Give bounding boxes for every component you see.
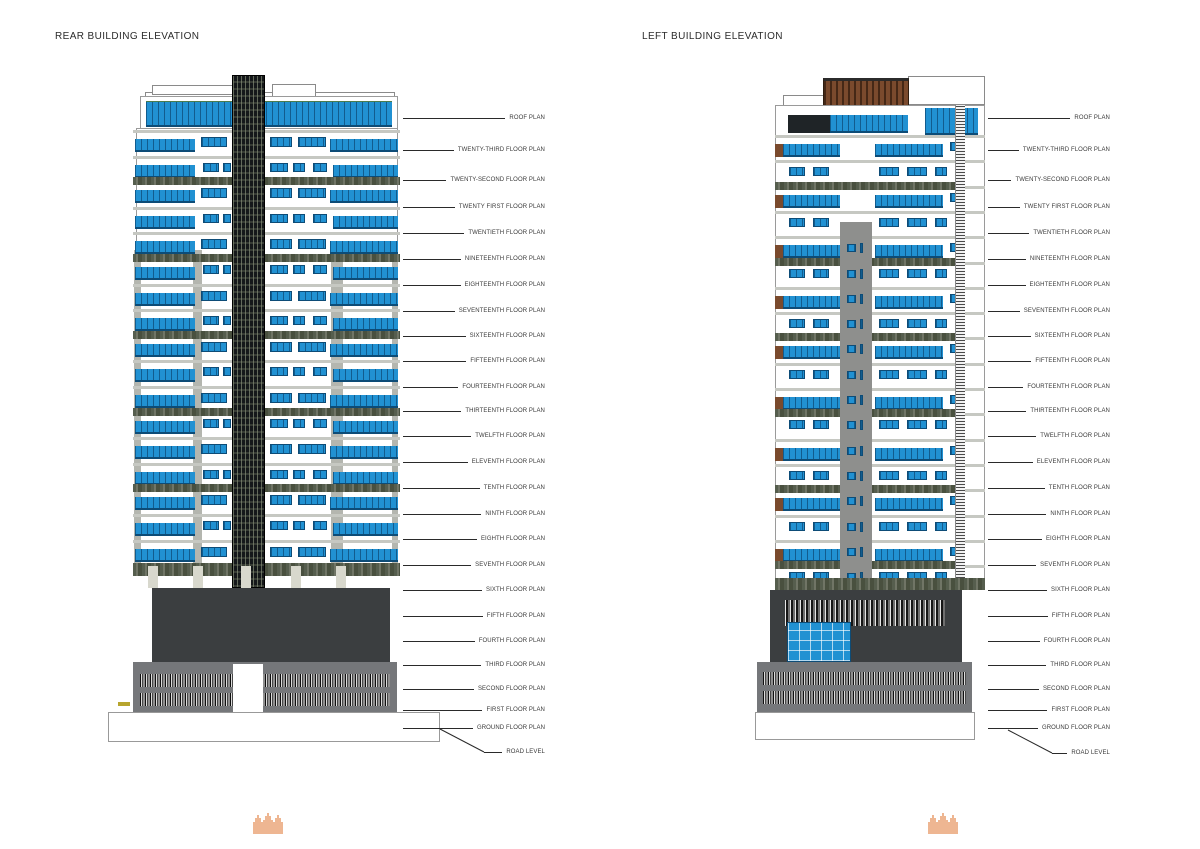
window-glazing xyxy=(875,498,943,511)
core-window xyxy=(847,295,856,303)
floor-label: NINETEENTH FLOOR PLAN xyxy=(1030,256,1110,262)
window-glazing xyxy=(935,319,947,328)
floor-label: SECOND FLOOR PLAN xyxy=(1043,686,1110,692)
core-window xyxy=(847,320,856,328)
core-window xyxy=(860,471,863,481)
window-glazing xyxy=(907,167,927,176)
leader-line xyxy=(988,590,1047,591)
window-glazing xyxy=(907,420,927,429)
podium-louver-strip xyxy=(763,691,966,704)
rooftop-dark-block xyxy=(788,115,830,133)
base-plinth xyxy=(755,712,975,740)
floor-label-row: THIRD FLOOR PLAN xyxy=(988,661,1110,669)
window-glazing xyxy=(879,167,899,176)
window-glazing xyxy=(813,522,829,531)
castle-towers-logo-icon xyxy=(928,812,958,838)
floor-label-row: TWENTY FIRST FLOOR PLAN xyxy=(988,203,1110,211)
floor-label-row: EIGHTEENTH FLOOR PLAN xyxy=(988,281,1110,289)
podium xyxy=(757,662,972,712)
floor-label-row: TWENTY-SECOND FLOOR PLAN xyxy=(988,176,1110,184)
floor-label: GROUND FLOOR PLAN xyxy=(1042,725,1110,731)
window-glazing xyxy=(875,195,943,208)
entrance-curtain-wall xyxy=(787,622,851,662)
window-glazing xyxy=(875,549,943,562)
floor-label-row: ROOF PLAN xyxy=(988,114,1110,122)
window-glazing xyxy=(783,245,840,258)
floor-slab xyxy=(775,160,985,163)
floor-label: EIGHTH FLOOR PLAN xyxy=(1046,536,1110,542)
floor-label: SIXTEENTH FLOOR PLAN xyxy=(1035,333,1110,339)
leader-line xyxy=(988,411,1026,412)
core-window xyxy=(847,523,856,531)
drawing-sheet: { "sheet": {"background": "#ffffff"}, "p… xyxy=(0,0,1200,849)
window-glazing xyxy=(935,471,947,480)
window-glazing xyxy=(875,144,943,157)
floor-slab xyxy=(775,363,985,366)
core-window xyxy=(847,244,856,252)
core-window xyxy=(860,420,863,430)
leader-line xyxy=(988,361,1031,362)
core-window xyxy=(847,371,856,379)
window-glazing xyxy=(789,167,805,176)
core-window xyxy=(860,547,863,557)
window-glazing xyxy=(935,420,947,429)
window-glazing xyxy=(875,245,943,258)
window-glazing xyxy=(789,218,805,227)
leader-line xyxy=(1052,753,1067,754)
core-window xyxy=(860,370,863,380)
leader-line xyxy=(988,665,1046,666)
panel-left-elevation: LEFT BUILDING ELEVATION ROOF PLANTWENTY-… xyxy=(0,0,1200,849)
timber-accent-panel xyxy=(775,498,783,511)
floor-label-row: SEVENTH FLOOR PLAN xyxy=(988,561,1110,569)
window-glazing xyxy=(875,448,943,461)
core-window xyxy=(847,548,856,556)
window-glazing xyxy=(935,522,947,531)
window-glazing xyxy=(789,522,805,531)
window-glazing xyxy=(789,370,805,379)
floor-slab xyxy=(775,540,985,543)
window-glazing xyxy=(875,296,943,309)
window-glazing xyxy=(907,218,927,227)
leader-line xyxy=(988,207,1020,208)
window-glazing xyxy=(813,218,829,227)
window-glazing xyxy=(907,269,927,278)
leader-line xyxy=(988,150,1019,151)
leader-line xyxy=(988,311,1020,312)
floor-slab xyxy=(775,236,985,239)
floor-slab xyxy=(775,439,985,442)
window-glazing xyxy=(783,397,840,410)
window-glazing xyxy=(789,269,805,278)
core-window xyxy=(847,421,856,429)
floor-label-row: SIXTH FLOOR PLAN xyxy=(988,586,1110,594)
window-glazing xyxy=(783,346,840,359)
floor-label: THIRD FLOOR PLAN xyxy=(1050,662,1110,668)
floor-label: FIFTH FLOOR PLAN xyxy=(1052,613,1110,619)
window-glazing xyxy=(879,420,899,429)
floor-slab xyxy=(775,312,985,315)
floor-label-row: FIFTEENTH FLOOR PLAN xyxy=(988,357,1110,365)
core-window xyxy=(860,269,863,279)
top-glazing-band xyxy=(925,108,978,135)
core-window xyxy=(847,396,856,404)
floor-label: FOURTH FLOOR PLAN xyxy=(1044,638,1110,644)
leader-line xyxy=(988,514,1046,515)
window-glazing xyxy=(783,549,840,562)
leader-line xyxy=(988,728,1038,729)
timber-accent-panel xyxy=(775,448,783,461)
floor-label: TENTH FLOOR PLAN xyxy=(1049,485,1110,491)
balcony-planter xyxy=(775,578,985,590)
window-glazing xyxy=(813,420,829,429)
window-glazing xyxy=(935,269,947,278)
floor-label: ROAD LEVEL xyxy=(1071,750,1110,756)
window-glazing xyxy=(879,370,899,379)
floor-slab xyxy=(775,388,985,391)
window-glazing xyxy=(935,218,947,227)
leader-line xyxy=(988,387,1023,388)
core-window xyxy=(860,446,863,456)
core-window xyxy=(860,496,863,506)
window-glazing xyxy=(813,269,829,278)
floor-label: TWENTY-SECOND FLOOR PLAN xyxy=(1015,177,1110,183)
timber-accent-panel xyxy=(775,144,783,157)
window-glazing xyxy=(879,522,899,531)
floor-label-row: NINETEENTH FLOOR PLAN xyxy=(988,255,1110,263)
window-glazing xyxy=(783,498,840,511)
tower-floors xyxy=(775,135,985,590)
window-glazing xyxy=(907,370,927,379)
floor-label: SEVENTH FLOOR PLAN xyxy=(1040,562,1110,568)
floor-label-row: EIGHTH FLOOR PLAN xyxy=(988,535,1110,543)
leader-line xyxy=(988,180,1011,181)
window-glazing xyxy=(879,471,899,480)
floor-label: TWELFTH FLOOR PLAN xyxy=(1040,433,1110,439)
window-glazing xyxy=(907,522,927,531)
floor-label-row: TENTH FLOOR PLAN xyxy=(988,484,1110,492)
window-glazing xyxy=(875,346,943,359)
floor-label-row: FOURTH FLOOR PLAN xyxy=(988,637,1110,645)
core-window xyxy=(860,522,863,532)
window-glazing xyxy=(875,397,943,410)
leader-line xyxy=(988,710,1047,711)
floor-label-row: TWELFTH FLOOR PLAN xyxy=(988,432,1110,440)
window-glazing xyxy=(935,370,947,379)
balcony-planter xyxy=(775,182,965,190)
floor-label: TWENTY FIRST FLOOR PLAN xyxy=(1024,204,1110,210)
leader-line xyxy=(988,285,1026,286)
floor-label: FIFTEENTH FLOOR PLAN xyxy=(1035,358,1110,364)
floor-label-row: GROUND FLOOR PLAN xyxy=(988,724,1110,732)
timber-accent-panel xyxy=(775,195,783,208)
leader-line xyxy=(988,462,1033,463)
window-glazing xyxy=(789,471,805,480)
floor-slab xyxy=(775,464,985,467)
window-glazing xyxy=(783,296,840,309)
floor-label: ROOF PLAN xyxy=(1074,115,1110,121)
window-glazing xyxy=(879,319,899,328)
floor-slab xyxy=(775,135,985,138)
leader-line xyxy=(988,616,1048,617)
floor-label: ELEVENTH FLOOR PLAN xyxy=(1037,459,1110,465)
timber-accent-panel xyxy=(775,397,783,410)
floor-label-row: FIFTH FLOOR PLAN xyxy=(988,612,1110,620)
floor-label: SEVENTEENTH FLOOR PLAN xyxy=(1024,308,1110,314)
core-window xyxy=(860,294,863,304)
core-window xyxy=(847,270,856,278)
window-glazing xyxy=(783,195,840,208)
floor-slab xyxy=(775,515,985,518)
floor-label-row: THIRTEENTH FLOOR PLAN xyxy=(988,407,1110,415)
window-glazing xyxy=(783,144,840,157)
core-window xyxy=(860,243,863,253)
floor-label: FOURTEENTH FLOOR PLAN xyxy=(1027,384,1110,390)
edge-louver-strip xyxy=(955,105,965,590)
leader-line xyxy=(988,488,1045,489)
leader-line xyxy=(988,641,1040,642)
window-glazing xyxy=(813,370,829,379)
leader-line xyxy=(988,565,1036,566)
floor-label: EIGHTEENTH FLOOR PLAN xyxy=(1030,282,1110,288)
core-window xyxy=(860,344,863,354)
leader-line xyxy=(988,336,1031,337)
core-window xyxy=(847,447,856,455)
core-window xyxy=(847,497,856,505)
window-glazing xyxy=(813,471,829,480)
core-window xyxy=(847,472,856,480)
floor-slab xyxy=(775,287,985,290)
podium-louver-strip xyxy=(763,672,966,685)
window-glazing xyxy=(907,319,927,328)
core-window xyxy=(860,395,863,405)
road-level-label-row: ROAD LEVEL xyxy=(1052,749,1110,757)
floor-label-row: SECOND FLOOR PLAN xyxy=(988,685,1110,693)
leader-line xyxy=(988,436,1036,437)
floor-label: TWENTIETH FLOOR PLAN xyxy=(1033,230,1110,236)
floor-label: NINTH FLOOR PLAN xyxy=(1050,511,1110,517)
top-glazing-band xyxy=(830,115,908,133)
window-glazing xyxy=(907,471,927,480)
leader-line xyxy=(988,118,1070,119)
floor-label-row: FIRST FLOOR PLAN xyxy=(988,706,1110,714)
timber-accent-panel xyxy=(775,296,783,309)
window-glazing xyxy=(789,420,805,429)
leader-line xyxy=(988,689,1039,690)
floor-slab xyxy=(775,211,985,214)
core-window xyxy=(847,345,856,353)
window-glazing xyxy=(783,448,840,461)
floor-label: SIXTH FLOOR PLAN xyxy=(1051,587,1110,593)
floor-label-row: TWENTIETH FLOOR PLAN xyxy=(988,229,1110,237)
timber-accent-panel xyxy=(775,549,783,562)
leader-line xyxy=(988,539,1042,540)
floor-label: TWENTY-THIRD FLOOR PLAN xyxy=(1023,147,1110,153)
window-glazing xyxy=(813,167,829,176)
floor-label: THIRTEENTH FLOOR PLAN xyxy=(1030,408,1110,414)
window-glazing xyxy=(789,319,805,328)
leader-line xyxy=(988,259,1026,260)
window-glazing xyxy=(813,319,829,328)
timber-accent-panel xyxy=(775,245,783,258)
roof-terrace-outline xyxy=(908,76,985,105)
floor-label-row: NINTH FLOOR PLAN xyxy=(988,510,1110,518)
floor-label-row: TWENTY-THIRD FLOOR PLAN xyxy=(988,146,1110,154)
core-window xyxy=(860,319,863,329)
floor-label-row: SIXTEENTH FLOOR PLAN xyxy=(988,332,1110,340)
core-wall-strip xyxy=(840,222,872,590)
panel-title: LEFT BUILDING ELEVATION xyxy=(642,31,783,42)
timber-accent-panel xyxy=(775,346,783,359)
leader-line xyxy=(988,233,1029,234)
window-glazing xyxy=(935,167,947,176)
window-glazing xyxy=(879,218,899,227)
floor-label-row: SEVENTEENTH FLOOR PLAN xyxy=(988,307,1110,315)
window-glazing xyxy=(879,269,899,278)
floor-label-row: FOURTEENTH FLOOR PLAN xyxy=(988,383,1110,391)
floor-label: FIRST FLOOR PLAN xyxy=(1051,707,1110,713)
floor-label-row: ELEVENTH FLOOR PLAN xyxy=(988,458,1110,466)
